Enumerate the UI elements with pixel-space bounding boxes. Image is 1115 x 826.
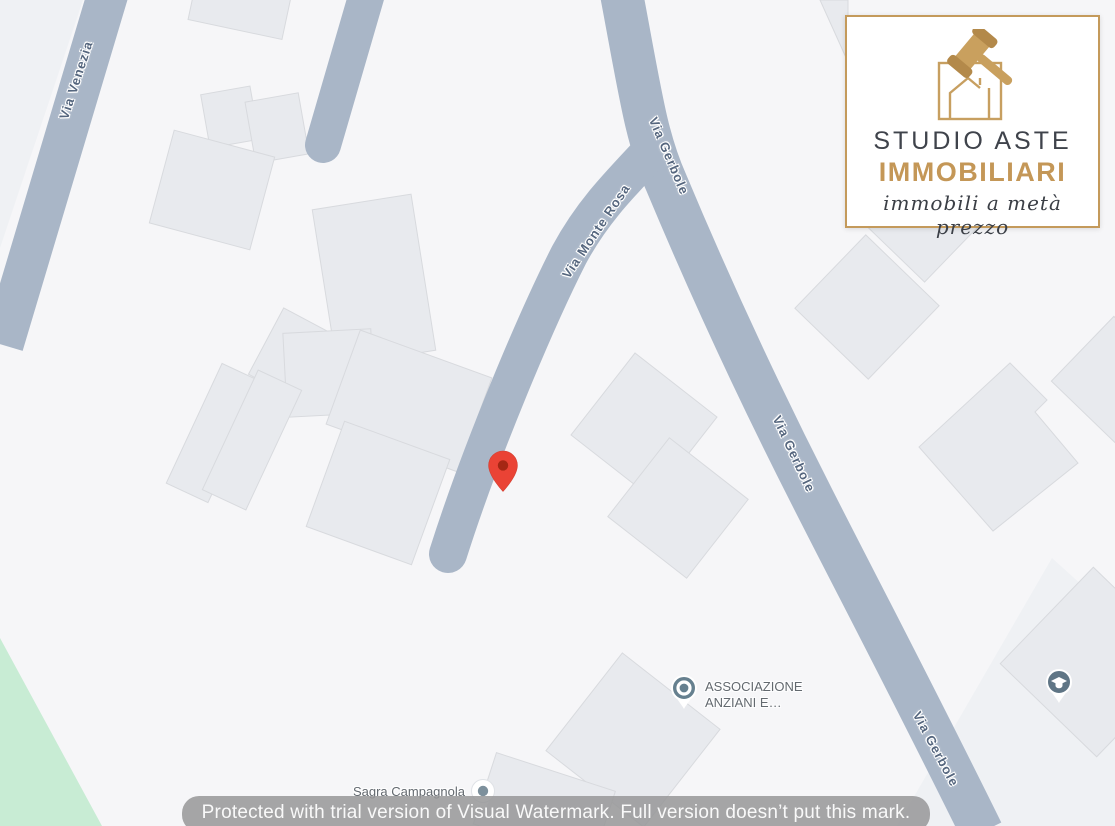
map-screenshot: Via Venezia Via Monte Rosa Via Gerbole V…	[0, 0, 1115, 826]
property-marker-pin[interactable]	[485, 449, 521, 493]
poi-label-associazione[interactable]: ASSOCIAZIONE ANZIANI E…	[705, 679, 825, 711]
building	[1051, 316, 1115, 443]
agency-logo-card: STUDIO ASTE IMMOBILIARI immobili a metà …	[845, 15, 1100, 228]
building	[188, 0, 292, 39]
poi-pin-dot	[478, 786, 488, 796]
logo-title-line2: IMMOBILIARI	[847, 157, 1098, 188]
poi-pin-ring-icon	[678, 682, 690, 694]
park-area	[0, 638, 102, 826]
poi-pin-associazione[interactable]	[669, 674, 699, 710]
road-stub	[323, 0, 371, 145]
building	[919, 363, 1078, 531]
poi-pin-school[interactable]	[1044, 668, 1074, 704]
marker-dot	[498, 460, 508, 470]
logo-tagline: immobili a metà prezzo	[847, 191, 1098, 239]
watermark-bar: Protected with trial version of Visual W…	[182, 796, 930, 826]
graduation-cap-base	[1056, 683, 1063, 688]
marker-body	[489, 451, 518, 491]
building	[820, 0, 848, 62]
gavel-house-icon	[923, 29, 1023, 123]
road-via-monte-rosa	[448, 150, 652, 554]
logo-title-line1: STUDIO ASTE	[847, 127, 1098, 156]
